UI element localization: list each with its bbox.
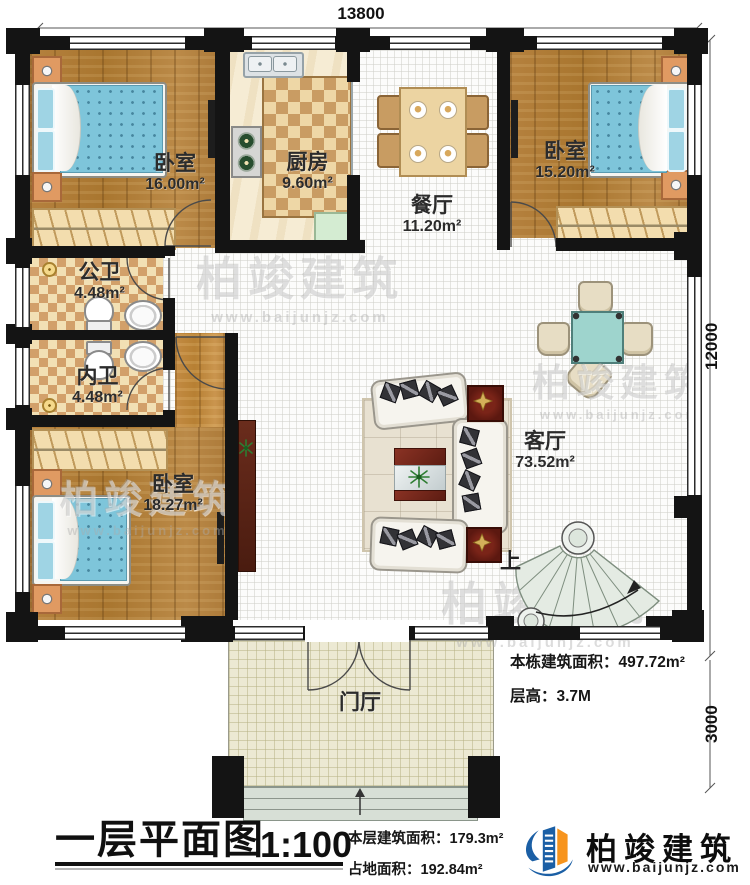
entry-steps [243,786,478,821]
wall-pillar [486,28,524,52]
plan-scale: 1:100 [260,824,352,866]
wall-pillar [6,238,32,264]
wall-pillar [674,496,702,518]
dimension-right-porch: 3000 [702,688,728,760]
tv-icon [217,512,224,564]
bed-pillow [36,501,55,541]
kitchen-mat [262,76,352,218]
title-footprint-area: 占地面积：192.84m² [348,858,483,879]
wall-pillar [674,232,702,260]
note-floor-height: 层高：3.7M [510,684,591,706]
dimension-top: 13800 [316,4,406,24]
bed-pillow [667,88,686,130]
window [415,626,488,640]
wall [15,415,163,427]
wall [163,410,175,427]
mahjong-chair [578,281,613,315]
title-floor-area: 本层建筑面积：179.3m² [348,827,504,848]
dining-table [399,87,467,177]
window [537,36,662,50]
wall-pillar [6,408,32,430]
side-table [466,527,502,563]
wall-pillar [486,616,514,640]
window [687,277,702,495]
stairs-up-label: 上 [500,545,521,575]
wall [497,36,510,250]
room-label-bedroom-bottom: 卧室 18.27m² [118,474,228,516]
wall [347,50,360,82]
window [15,268,30,327]
mahjong-chair [537,322,570,356]
wall-pillar [181,616,233,642]
mahjong-chair [620,322,653,356]
window [687,85,702,175]
room-label-bath-private: 内卫 4.48m² [45,366,150,408]
room-label-bedroom-top-right: 卧室 15.20m² [510,141,620,183]
bed-pillow [36,541,55,581]
wall [163,298,175,370]
entry-door-opening [305,624,409,642]
wall-pillar [6,612,38,642]
sink-bowl [273,56,297,72]
company-website: www.baijunjz.com [588,859,741,875]
window [252,36,335,50]
company-logo-icon [518,820,580,878]
coffee-table-glass [394,465,446,492]
wall [15,246,165,258]
room-label-foyer: 门厅 [310,692,410,714]
bed-sheet [638,85,667,171]
wall [215,50,230,253]
window [70,36,185,50]
window [580,626,660,640]
title-underline [55,862,343,866]
wall-pillar [674,28,708,54]
title-underline-light [55,868,343,870]
mahjong-table [571,311,624,364]
console-table [238,420,256,572]
porch-pillar [212,756,244,818]
tv-icon [208,100,215,158]
wall-pillar [336,28,370,52]
floor-plan-sheet: 柏竣建筑 www.baijunjz.com 柏竣建筑 www.baijunjz.… [0,0,750,885]
wall-pillar [6,28,40,54]
kitchen-sink [243,52,304,78]
room-label-bath-public: 公卫 4.48m² [47,262,152,304]
wardrobe [32,429,168,471]
room-label-bedroom-top-left: 卧室 16.00m² [110,153,240,195]
corridor-floor [175,333,225,427]
fridge [314,212,351,242]
note-total-area: 本栋建筑面积：497.72m² [510,650,685,672]
dimension-right-main: 12000 [702,298,728,394]
window [65,626,185,640]
window [15,486,30,592]
window [15,348,30,405]
coffee-table-bottom [394,490,446,501]
room-label-living: 客厅 73.52m² [490,431,600,473]
porch-pillar [468,756,500,818]
bathroom-sink [124,300,162,331]
wall [215,240,365,253]
side-table [467,385,504,422]
wall [163,246,175,256]
nightstand [32,172,62,202]
window [15,85,30,175]
window [390,36,470,50]
room-label-dining: 餐厅 11.20m² [377,195,487,237]
foyer-floor [228,640,494,788]
plan-title: 一层平面图 [55,818,265,862]
wall-pillar [6,324,32,344]
window [235,626,303,640]
bed-pillow [36,130,55,172]
wall [15,330,163,340]
nightstand [32,584,62,614]
bed-pillow [36,88,55,130]
room-label-kitchen: 厨房 9.60m² [255,152,360,194]
bed-pillow [667,130,686,172]
wall-pillar [672,610,704,642]
sink-bowl [248,56,272,72]
wall-pillar [204,28,244,52]
wardrobe [32,208,176,250]
